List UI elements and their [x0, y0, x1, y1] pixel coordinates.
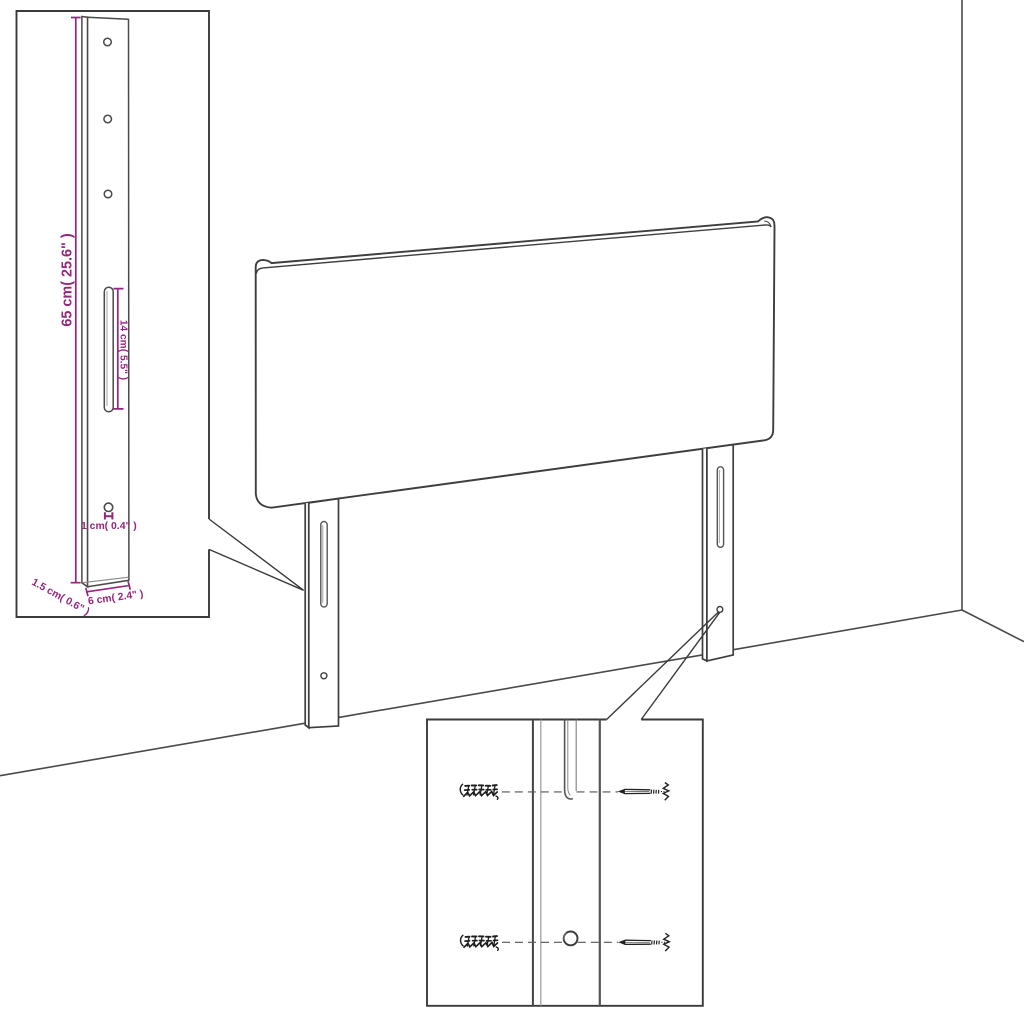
svg-text:14 cm( 5.5" ): 14 cm( 5.5" ) [117, 320, 128, 380]
svg-text:65 cm( 25.6" ): 65 cm( 25.6" ) [60, 233, 76, 326]
svg-text:1 cm( 0.4" ): 1 cm( 0.4" ) [81, 521, 137, 532]
svg-text:6 cm( 2.4" ): 6 cm( 2.4" ) [87, 589, 144, 608]
